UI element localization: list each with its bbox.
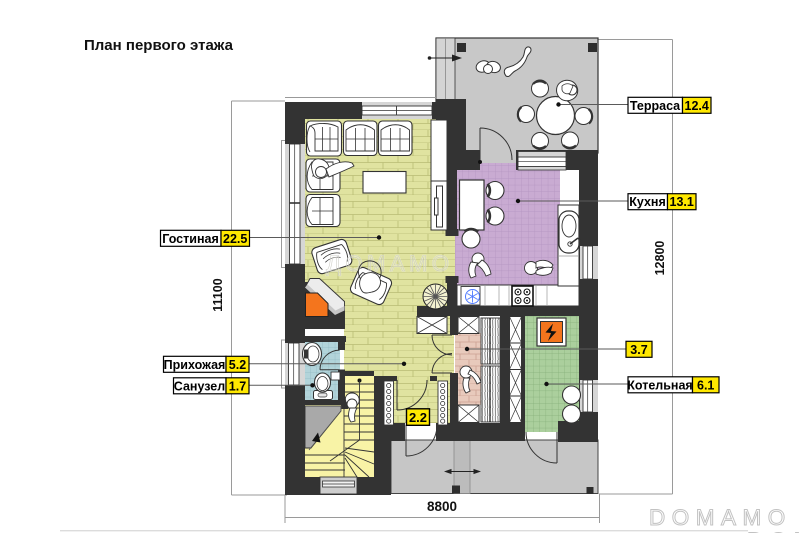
svg-text:12800: 12800 <box>653 241 667 276</box>
svg-text:Кухня: Кухня <box>629 195 666 209</box>
svg-text:1.7: 1.7 <box>229 379 246 393</box>
svg-text:План первого этажа: План первого этажа <box>84 37 234 54</box>
svg-text:3.7: 3.7 <box>630 343 647 357</box>
svg-text:11100: 11100 <box>211 278 225 311</box>
svg-text:ДОМАМО: ДОМАМО <box>326 251 453 276</box>
svg-text:2.2: 2.2 <box>409 410 427 425</box>
svg-text:13.1: 13.1 <box>670 195 694 209</box>
svg-text:Прихожая: Прихожая <box>164 358 226 372</box>
svg-text:Котельная: Котельная <box>627 378 692 392</box>
svg-text:6.1: 6.1 <box>697 378 714 392</box>
svg-text:5.2: 5.2 <box>229 358 246 372</box>
svg-text:DOMAMO: DOMAMO <box>649 505 792 530</box>
svg-text:12.4: 12.4 <box>685 99 709 113</box>
svg-text:Санузел: Санузел <box>174 379 225 393</box>
svg-text:Гостиная: Гостиная <box>162 232 219 246</box>
svg-text:8800: 8800 <box>427 499 457 514</box>
svg-text:DOMAMO: DOMAMO <box>747 528 800 533</box>
svg-text:Терраса: Терраса <box>630 99 681 113</box>
svg-text:22.5: 22.5 <box>223 232 247 246</box>
